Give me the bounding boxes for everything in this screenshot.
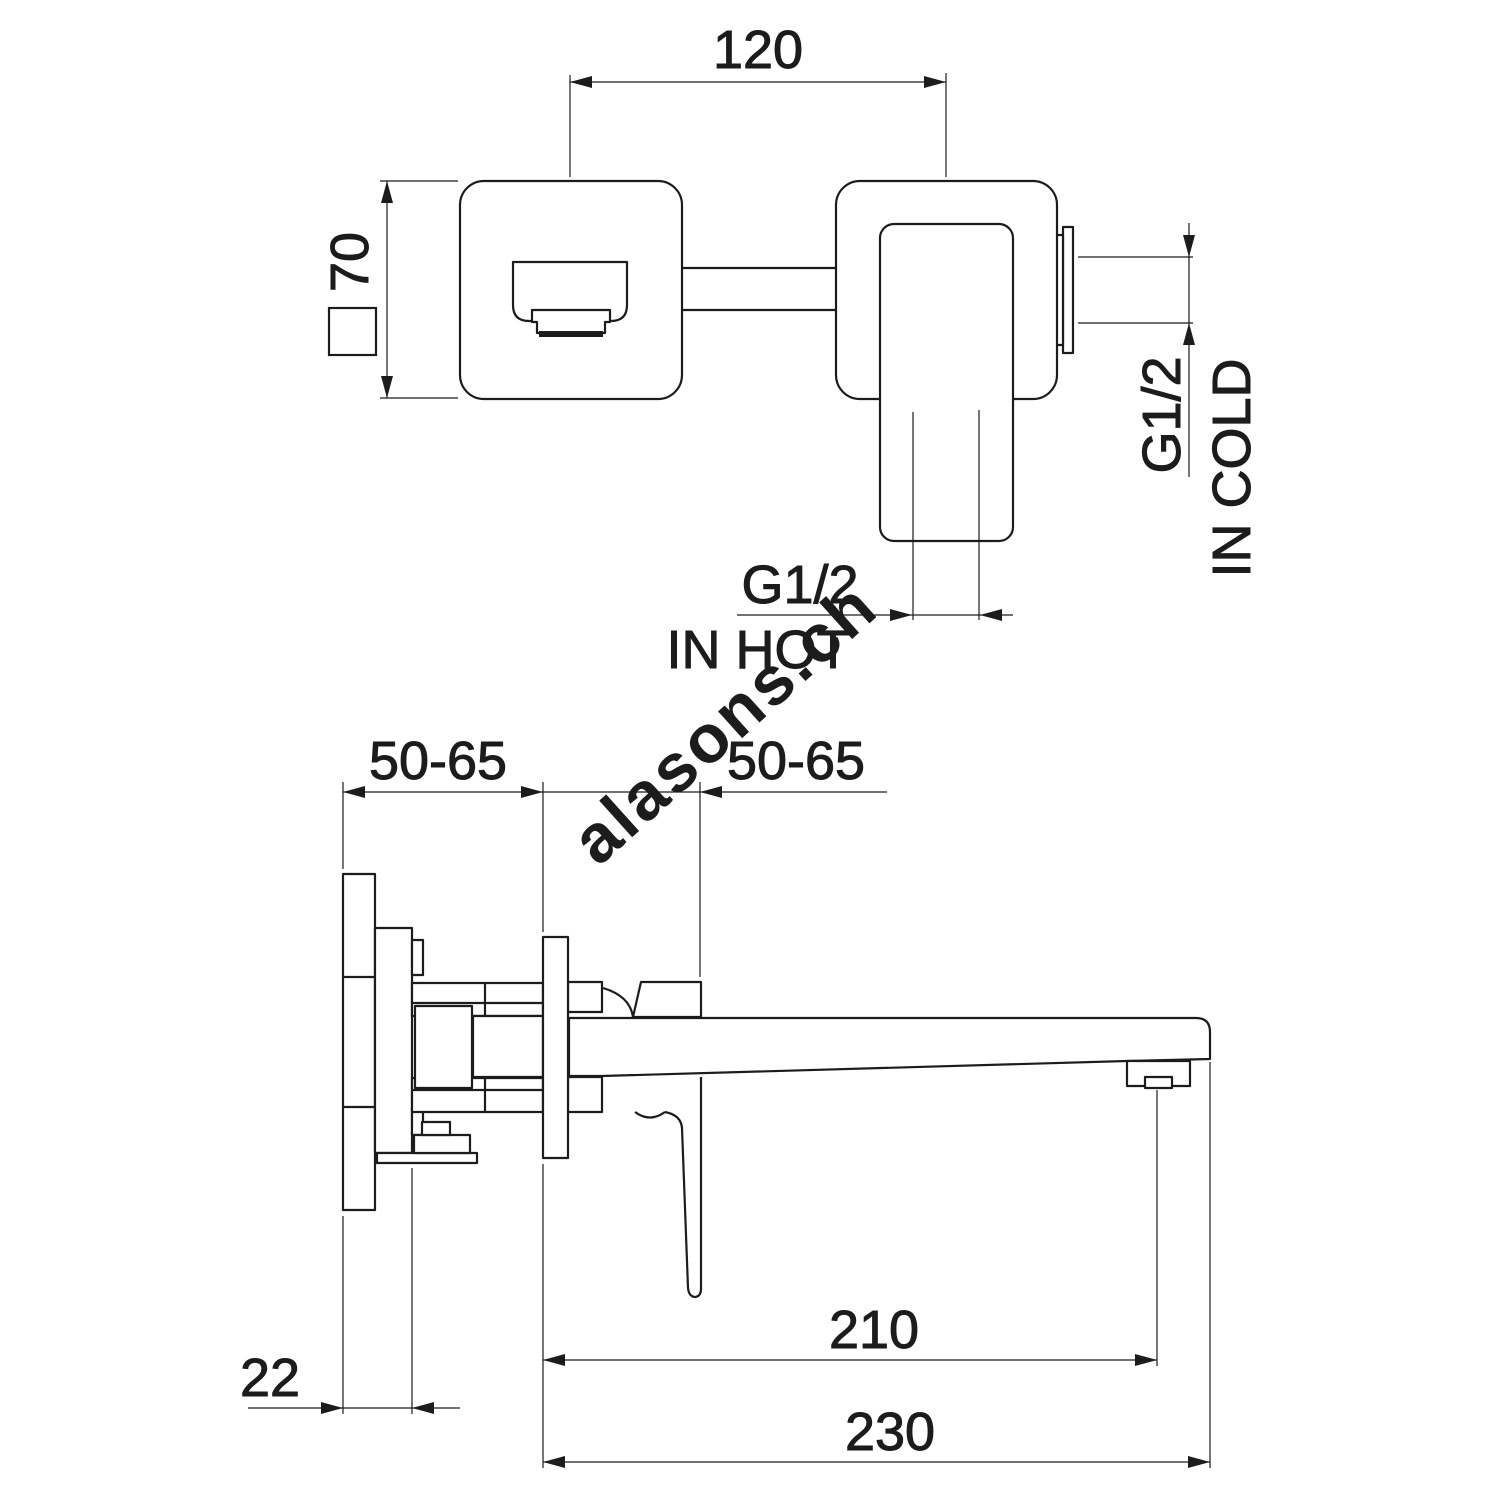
cold-inlet-label: IN COLD	[1202, 358, 1262, 577]
valve-body-tab-top	[412, 940, 423, 975]
spout-nozzle	[532, 310, 610, 333]
valve-body-step1	[414, 1135, 470, 1153]
valve-body-step2	[422, 1122, 450, 1135]
lower-connection-front	[568, 1077, 602, 1112]
valve-body	[375, 928, 412, 1153]
dim-70: 70	[320, 181, 458, 398]
wall-flange	[343, 874, 375, 1210]
mixer-core-block	[473, 1016, 543, 1077]
upper-connection-front	[568, 982, 602, 1012]
side-view	[343, 874, 1210, 1297]
dim-70-label: 70	[320, 232, 380, 292]
cartridge-block	[415, 1006, 472, 1088]
front-view	[460, 181, 1073, 541]
aerator-nub	[1145, 1077, 1172, 1088]
dim-230-label: 230	[845, 1402, 935, 1462]
square-section-symbol	[329, 308, 376, 355]
dim-120-label: 120	[713, 20, 803, 80]
cold-inlet-flange-outer	[1063, 227, 1073, 353]
rosette-plate	[543, 937, 568, 1158]
dim-g12-cold: G1/2 IN COLD	[1078, 223, 1262, 578]
faucet-dimension-drawing: alasons.ch	[0, 0, 1500, 1500]
dim-50-65-right-label: 50-65	[727, 731, 865, 791]
dim-230: 230	[543, 1062, 1210, 1468]
hot-size-label: G1/2	[741, 555, 858, 615]
technical-drawing-page: alasons.ch	[0, 0, 1500, 1500]
body-underside-nub	[635, 1112, 665, 1118]
handle-base-side	[633, 982, 701, 1017]
dimensions: 120 70 G1/2 IN HOT	[240, 20, 1262, 1468]
dim-210-label: 210	[829, 1300, 919, 1360]
handle-fillet-arc	[603, 988, 633, 1017]
valve-body-base	[377, 1153, 477, 1163]
dim-22-label: 22	[240, 1348, 300, 1408]
spout-side	[569, 1018, 1210, 1076]
cold-size-label: G1/2	[1132, 356, 1192, 473]
dim-120: 120	[570, 20, 946, 177]
hot-inlet-label: IN HOT	[667, 620, 850, 680]
handle-lever-side	[665, 1077, 701, 1297]
handle-front	[880, 224, 1013, 541]
dim-50-65-left-label: 50-65	[369, 731, 507, 791]
